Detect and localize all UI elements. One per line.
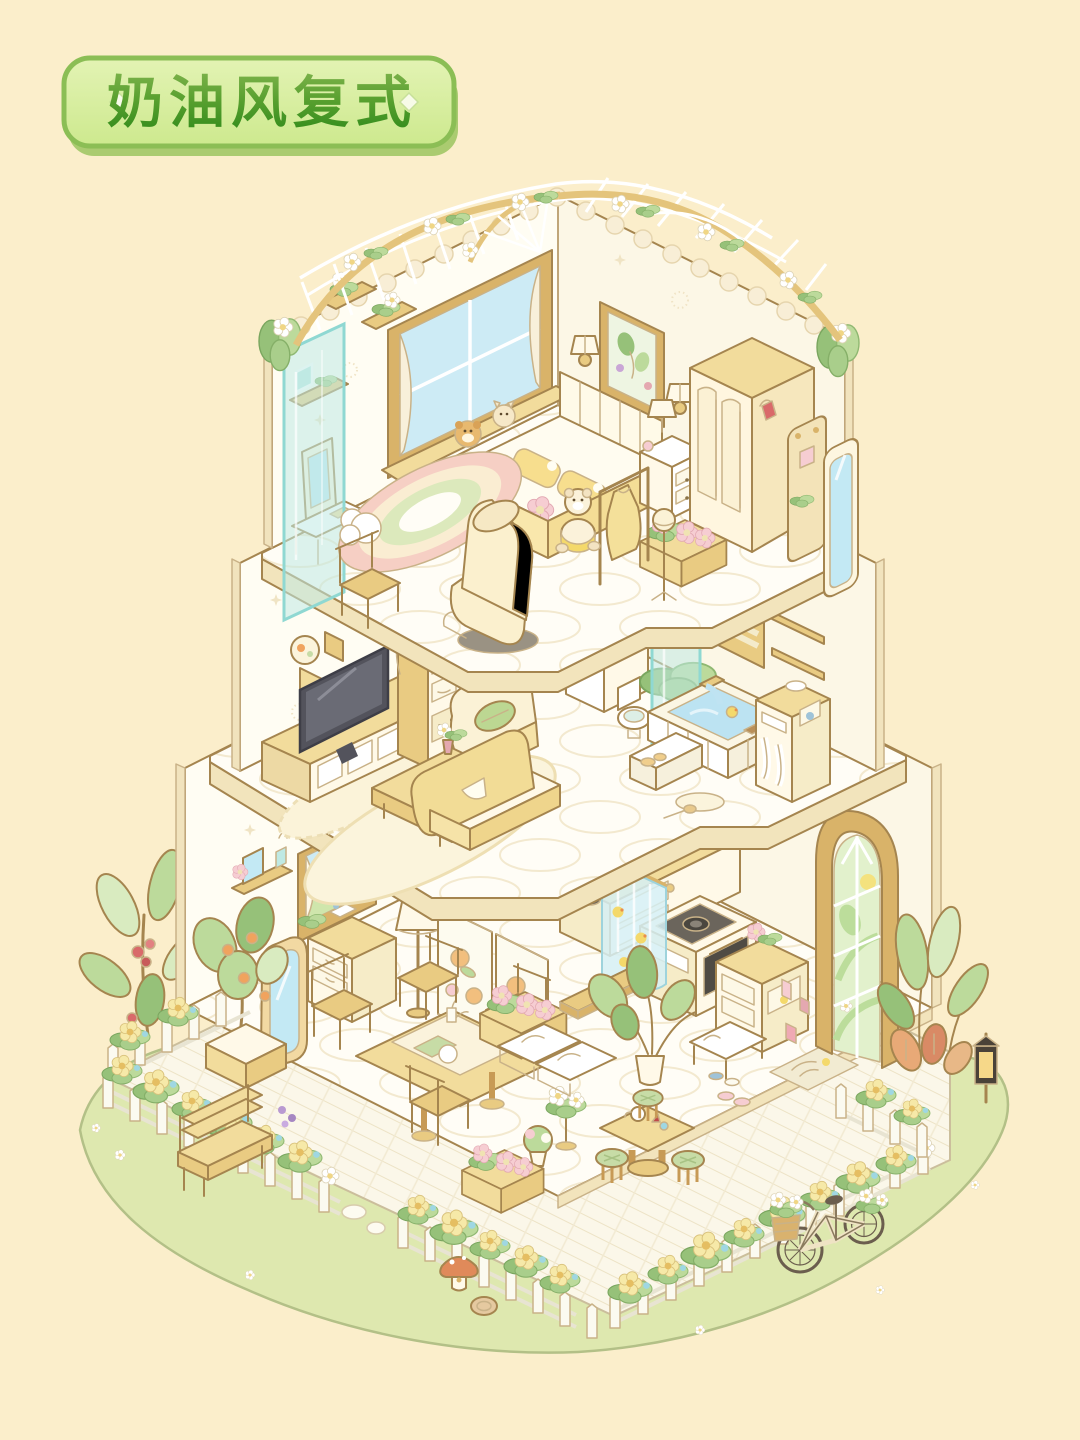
poster: 奶油风复式 [0, 0, 1080, 1440]
log-slice [471, 1297, 497, 1315]
badge-title: 奶油风复式 [107, 71, 417, 136]
plush-cat [493, 401, 515, 427]
plush-dog [455, 421, 481, 447]
stepping-stone-2 [367, 1222, 385, 1234]
stepping-stone-1 [342, 1205, 366, 1219]
towel-cabinet [756, 681, 830, 802]
bath-mat [676, 793, 724, 811]
title-badge: 奶油风复式 [64, 58, 458, 156]
top-floor-bedroom [259, 178, 859, 692]
ground-left-wall-edge [176, 764, 185, 1008]
bedroom-standing-mirror [824, 435, 858, 600]
peg-rack [788, 413, 826, 564]
illustration: 奶油风复式 [0, 0, 1080, 1440]
arched-garden-door [816, 811, 898, 1068]
vanity-glass-panel [284, 324, 344, 620]
